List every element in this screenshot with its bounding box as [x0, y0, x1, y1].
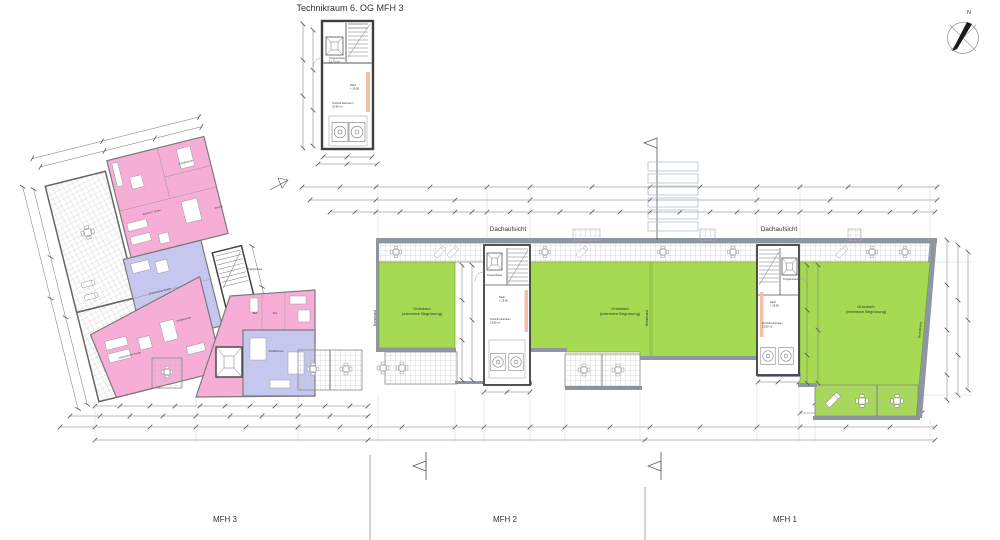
room-schlafzimmer-3: Schlafzimmer: [268, 350, 283, 353]
shaft-mfh1: [760, 292, 764, 337]
mfh1-dach-label: Dach: [770, 300, 777, 304]
building-label-mfh2: MFH 2: [493, 515, 518, 524]
elevator-mfh2: [487, 253, 502, 270]
detail-technik-label: Technik Heizraum: [332, 101, 354, 105]
shaft-detail: [366, 72, 370, 112]
dachaufsicht-label-left: Dachaufsicht: [490, 226, 527, 233]
room-flur: Flur: [273, 312, 277, 315]
mfh1-treppenhaus-label: Treppenhaus: [783, 277, 799, 281]
compass-rose: [948, 22, 979, 54]
mfh2-dach-label: Dach: [499, 295, 506, 299]
section-flag-top: [644, 138, 657, 148]
green-roof-mfh2: [530, 262, 757, 358]
compass-north-label: N: [967, 10, 971, 16]
detail-technik-area: 23,80 m²: [332, 105, 343, 109]
green-roof-mfh3-side: [379, 262, 455, 348]
section-flag-bottom-left: [413, 461, 426, 471]
compass-needle: [952, 22, 972, 51]
brandwand-label-left: Brandwand: [373, 310, 377, 326]
floor-plan-page: { "title": "Technikraum 6. OG MFH 3", "c…: [0, 0, 1000, 540]
dimension-chains-top: [302, 186, 937, 238]
roof-outline-below: [648, 162, 698, 231]
roof-plan-drawing: Technikraum 6. OG MFH 3 N Dachaufsicht D…: [0, 0, 1000, 540]
detail-dach-level: + 19,90: [350, 87, 360, 91]
dachaufsicht-label-right: Dachaufsicht: [761, 226, 798, 233]
detail-treppenhaus-label: Treppenhaus: [329, 56, 345, 60]
detail-treppenhaus-area: 12,71 m²: [329, 60, 340, 64]
roof-band: [376, 229, 937, 420]
mfh2-dach-level: + 19,90: [499, 299, 508, 303]
gruendach-label-1b: (extensive Begrünung): [402, 311, 443, 316]
building-label-mfh3: MFH 3: [213, 515, 238, 524]
top-terrace-strip: [378, 243, 932, 262]
gruendach-label-2b: (extensive Begrünung): [600, 311, 641, 316]
gruendach-label-3b: (extensive Begrünung): [846, 309, 887, 314]
mfh1-dach-level: + 19,90: [770, 304, 779, 308]
page-title: Technikraum 6. OG MFH 3: [296, 3, 403, 13]
technikraum-detail: [303, 21, 377, 164]
mfh2-technik-area: 23,80 m²: [490, 321, 500, 325]
terrace-bottom-left: [385, 352, 457, 384]
stairwell-mfh2: [475, 245, 530, 385]
shaft-mfh2: [525, 290, 529, 332]
room-bad: Bad: [253, 312, 258, 315]
brandwand-label-mid: Brandwand: [645, 310, 649, 326]
elevator-mfh1: [782, 258, 797, 275]
detail-dach-label: Dach: [350, 83, 357, 87]
mfh2-treppenhaus-label: Treppenhaus: [487, 273, 503, 277]
mfh1-technik-label: Technik Heizraum: [762, 321, 783, 325]
elevator-detail: [326, 37, 343, 55]
mfh2-technik-label: Technik Heizraum: [490, 317, 511, 321]
section-flag-bottom-right: [648, 461, 661, 471]
building-label-mfh1: MFH 1: [773, 515, 798, 524]
mfh3-treppenhaus-label: Treppenhaus: [248, 268, 263, 271]
elevator-mfh3: [216, 347, 242, 377]
mfh1-technik-area: 23,80 m²: [762, 325, 772, 329]
